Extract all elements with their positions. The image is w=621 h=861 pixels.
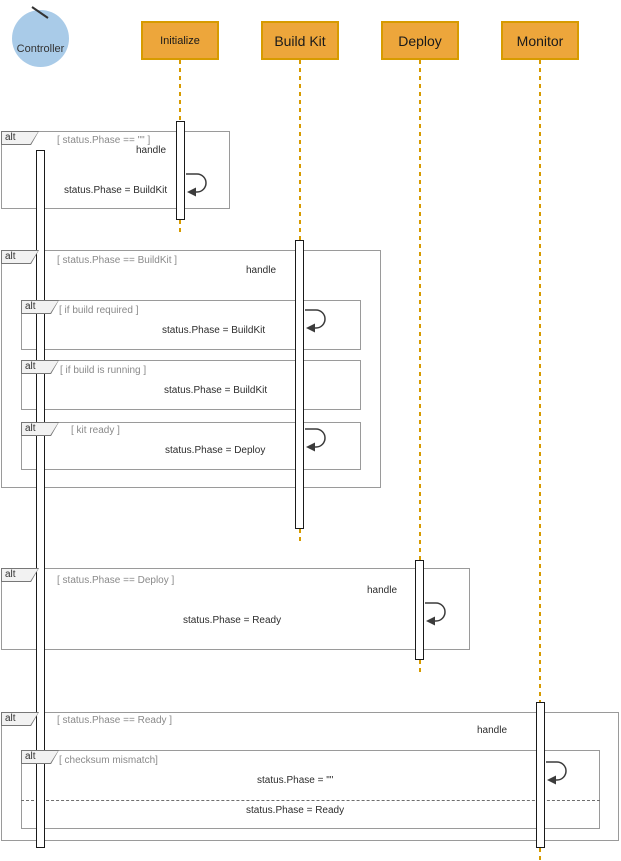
- guard-condition: [ if build is running ]: [60, 365, 146, 376]
- self-message-arrow-initialize: [186, 170, 212, 198]
- message-label: status.Phase = "": [256, 775, 334, 787]
- message-label: status.Phase = BuildKit: [63, 185, 168, 197]
- message-label-handle: handle: [135, 145, 167, 157]
- lifeline-initialize: [179, 60, 181, 121]
- guard-condition: [ status.Phase == BuildKit ]: [57, 255, 177, 266]
- guard-condition: [ if build required ]: [59, 305, 139, 316]
- control-tick-icon: [30, 4, 50, 20]
- lifeline-deploy-tail: [419, 660, 421, 676]
- self-message-arrow-monitor: [546, 758, 572, 786]
- message-label-handle: handle: [366, 585, 398, 597]
- activation-monitor: [536, 702, 545, 848]
- sequence-diagram: Controller Initialize Build Kit Deploy M…: [0, 0, 621, 861]
- guard-condition: [ status.Phase == Ready ]: [57, 715, 172, 726]
- alt-operator-label: alt: [25, 751, 36, 763]
- message-label: status.Phase = BuildKit: [163, 385, 268, 397]
- alt-operator-label: alt: [25, 301, 36, 313]
- lifeline-initialize-tail: [179, 220, 181, 232]
- self-message-arrow-build-required: [305, 306, 331, 334]
- alt-operator-label: alt: [25, 423, 36, 435]
- fragment-divider: [21, 800, 600, 801]
- message-label: status.Phase = BuildKit: [161, 325, 266, 337]
- lifeline-monitor-tail: [539, 848, 541, 861]
- self-message-arrow-deploy: [425, 599, 451, 627]
- message-label: status.Phase = Ready: [182, 615, 282, 627]
- activation-initialize: [176, 121, 185, 220]
- self-message-arrow-kit-ready: [305, 425, 331, 453]
- message-label: status.Phase = Deploy: [164, 445, 266, 457]
- actor-controller: Controller: [12, 43, 69, 55]
- message-label: status.Phase = Ready: [245, 805, 345, 817]
- guard-condition: [ checksum mismatch]: [59, 755, 158, 766]
- message-label-handle: handle: [476, 725, 508, 737]
- activation-build-kit: [295, 240, 304, 529]
- activation-controller: [36, 150, 45, 848]
- lifeline-deploy: [419, 60, 421, 560]
- lifeline-build-kit: [299, 60, 301, 240]
- alt-operator-label: alt: [5, 132, 16, 144]
- participant-build-kit: Build Kit: [261, 21, 339, 60]
- participant-deploy: Deploy: [381, 21, 459, 60]
- lifeline-build-kit-tail: [299, 529, 301, 541]
- activation-deploy: [415, 560, 424, 660]
- alt-operator-label: alt: [25, 361, 36, 373]
- participant-monitor: Monitor: [501, 21, 579, 60]
- lifeline-monitor: [539, 60, 541, 702]
- participant-initialize: Initialize: [141, 21, 219, 60]
- alt-operator-label: alt: [5, 713, 16, 725]
- alt-operator-label: alt: [5, 251, 16, 263]
- guard-condition: [ kit ready ]: [71, 425, 120, 436]
- alt-operator-label: alt: [5, 569, 16, 581]
- guard-condition: [ status.Phase == Deploy ]: [57, 575, 174, 586]
- message-label-handle: handle: [245, 265, 277, 277]
